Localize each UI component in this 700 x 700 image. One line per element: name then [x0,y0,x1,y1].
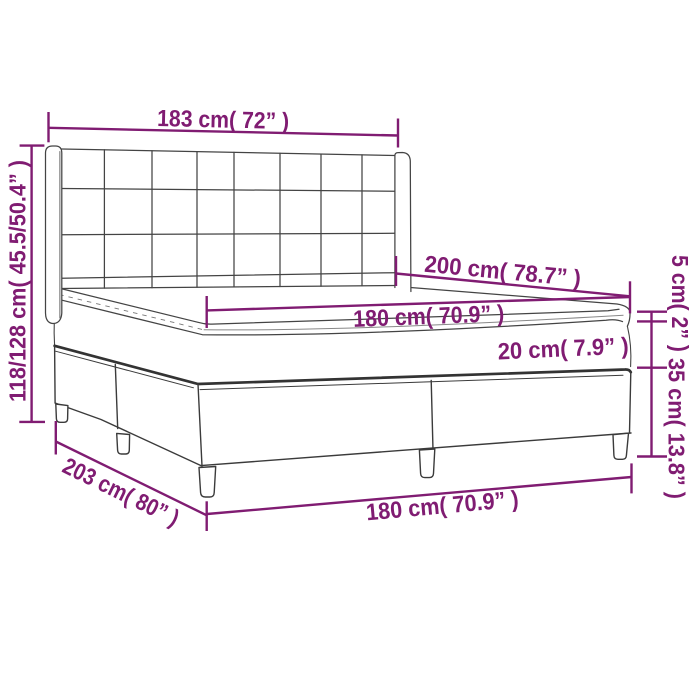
svg-text:183 cm( 72” ): 183 cm( 72” ) [157,105,290,134]
svg-text:5 cm( 2” ): 5 cm( 2” ) [667,255,693,352]
svg-text:118/128 cm( 45.5/50.4” ): 118/128 cm( 45.5/50.4” ) [5,160,31,402]
svg-text:35 cm( 13.8” ): 35 cm( 13.8” ) [664,358,690,499]
